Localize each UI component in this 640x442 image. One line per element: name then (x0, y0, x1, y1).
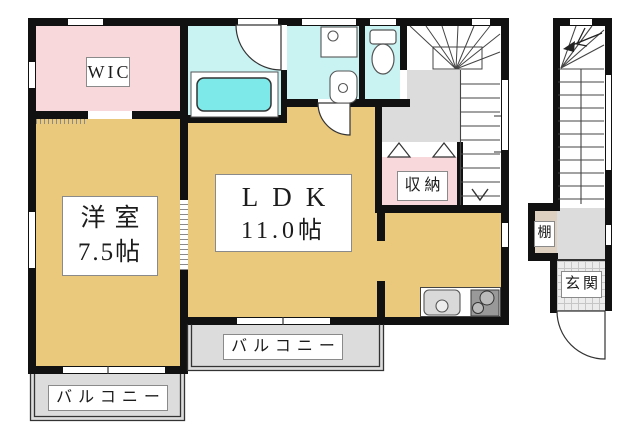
wall (375, 205, 509, 213)
window (29, 62, 35, 88)
room-toilet (365, 25, 400, 99)
label-shelf: 棚 (534, 221, 555, 247)
window (606, 75, 611, 170)
doorway-opening (318, 99, 350, 107)
entrance-door-arc (557, 311, 605, 359)
window (29, 212, 35, 268)
hallway-upper (407, 70, 460, 110)
label-western-room: 洋室 7.5帖 (62, 196, 158, 276)
stairs-up-arrow (563, 28, 602, 52)
wall (550, 253, 557, 313)
label-balcony-west: バルコニー (48, 385, 168, 411)
entrance-text: 玄関 (565, 274, 601, 294)
western-room-size: 7.5帖 (78, 236, 142, 270)
window (238, 19, 278, 25)
wall (457, 142, 463, 213)
hallway-entrance (557, 208, 605, 260)
shelf-text: 棚 (538, 225, 552, 244)
stairs-main-area (460, 70, 501, 205)
window (68, 19, 103, 25)
wall (181, 317, 509, 325)
wall (501, 18, 509, 325)
wic-text: WIC (88, 60, 132, 84)
kitchen-counter (420, 287, 501, 317)
ldk-name: LDK (228, 179, 340, 215)
wall (181, 115, 287, 123)
storage-text: 収納 (404, 175, 444, 197)
wall (359, 18, 365, 107)
ldk-size: 11.0帖 (241, 215, 326, 247)
sliding-door-hatch (36, 119, 88, 124)
wall (377, 281, 385, 321)
window (502, 80, 508, 150)
doorway-opening (400, 70, 407, 99)
wall (377, 213, 385, 241)
window (370, 19, 396, 25)
hallway-lower (378, 107, 460, 142)
window (237, 318, 330, 324)
window (570, 19, 592, 25)
window (502, 223, 508, 247)
sliding-door-hatch (180, 200, 188, 270)
balcony-main-text: バルコニー (231, 336, 341, 358)
window (472, 19, 490, 25)
balcony-west-text: バルコニー (56, 387, 166, 409)
label-ldk: LDK 11.0帖 (215, 174, 352, 252)
storage-door-strip (382, 142, 457, 157)
stairs-entrance (558, 26, 604, 204)
window (606, 225, 611, 245)
floor-plan: WIC 洋室 7.5帖 LDK 11.0帖 収納 バルコニー バルコニー 棚 玄… (0, 0, 640, 442)
label-wic: WIC (86, 57, 130, 87)
label-storage: 収納 (397, 171, 448, 201)
window (302, 19, 356, 25)
western-room-name: 洋室 (71, 202, 148, 236)
room-washroom (287, 25, 359, 99)
doorway-opening (88, 111, 132, 119)
wall (375, 99, 382, 213)
label-balcony-main: バルコニー (223, 334, 343, 360)
window (63, 367, 165, 373)
wall (180, 18, 188, 374)
label-entrance: 玄関 (561, 271, 602, 298)
room-bath (187, 25, 281, 122)
wall (553, 18, 560, 210)
doorway-opening (281, 25, 287, 70)
stairs-main-winder (410, 26, 500, 69)
